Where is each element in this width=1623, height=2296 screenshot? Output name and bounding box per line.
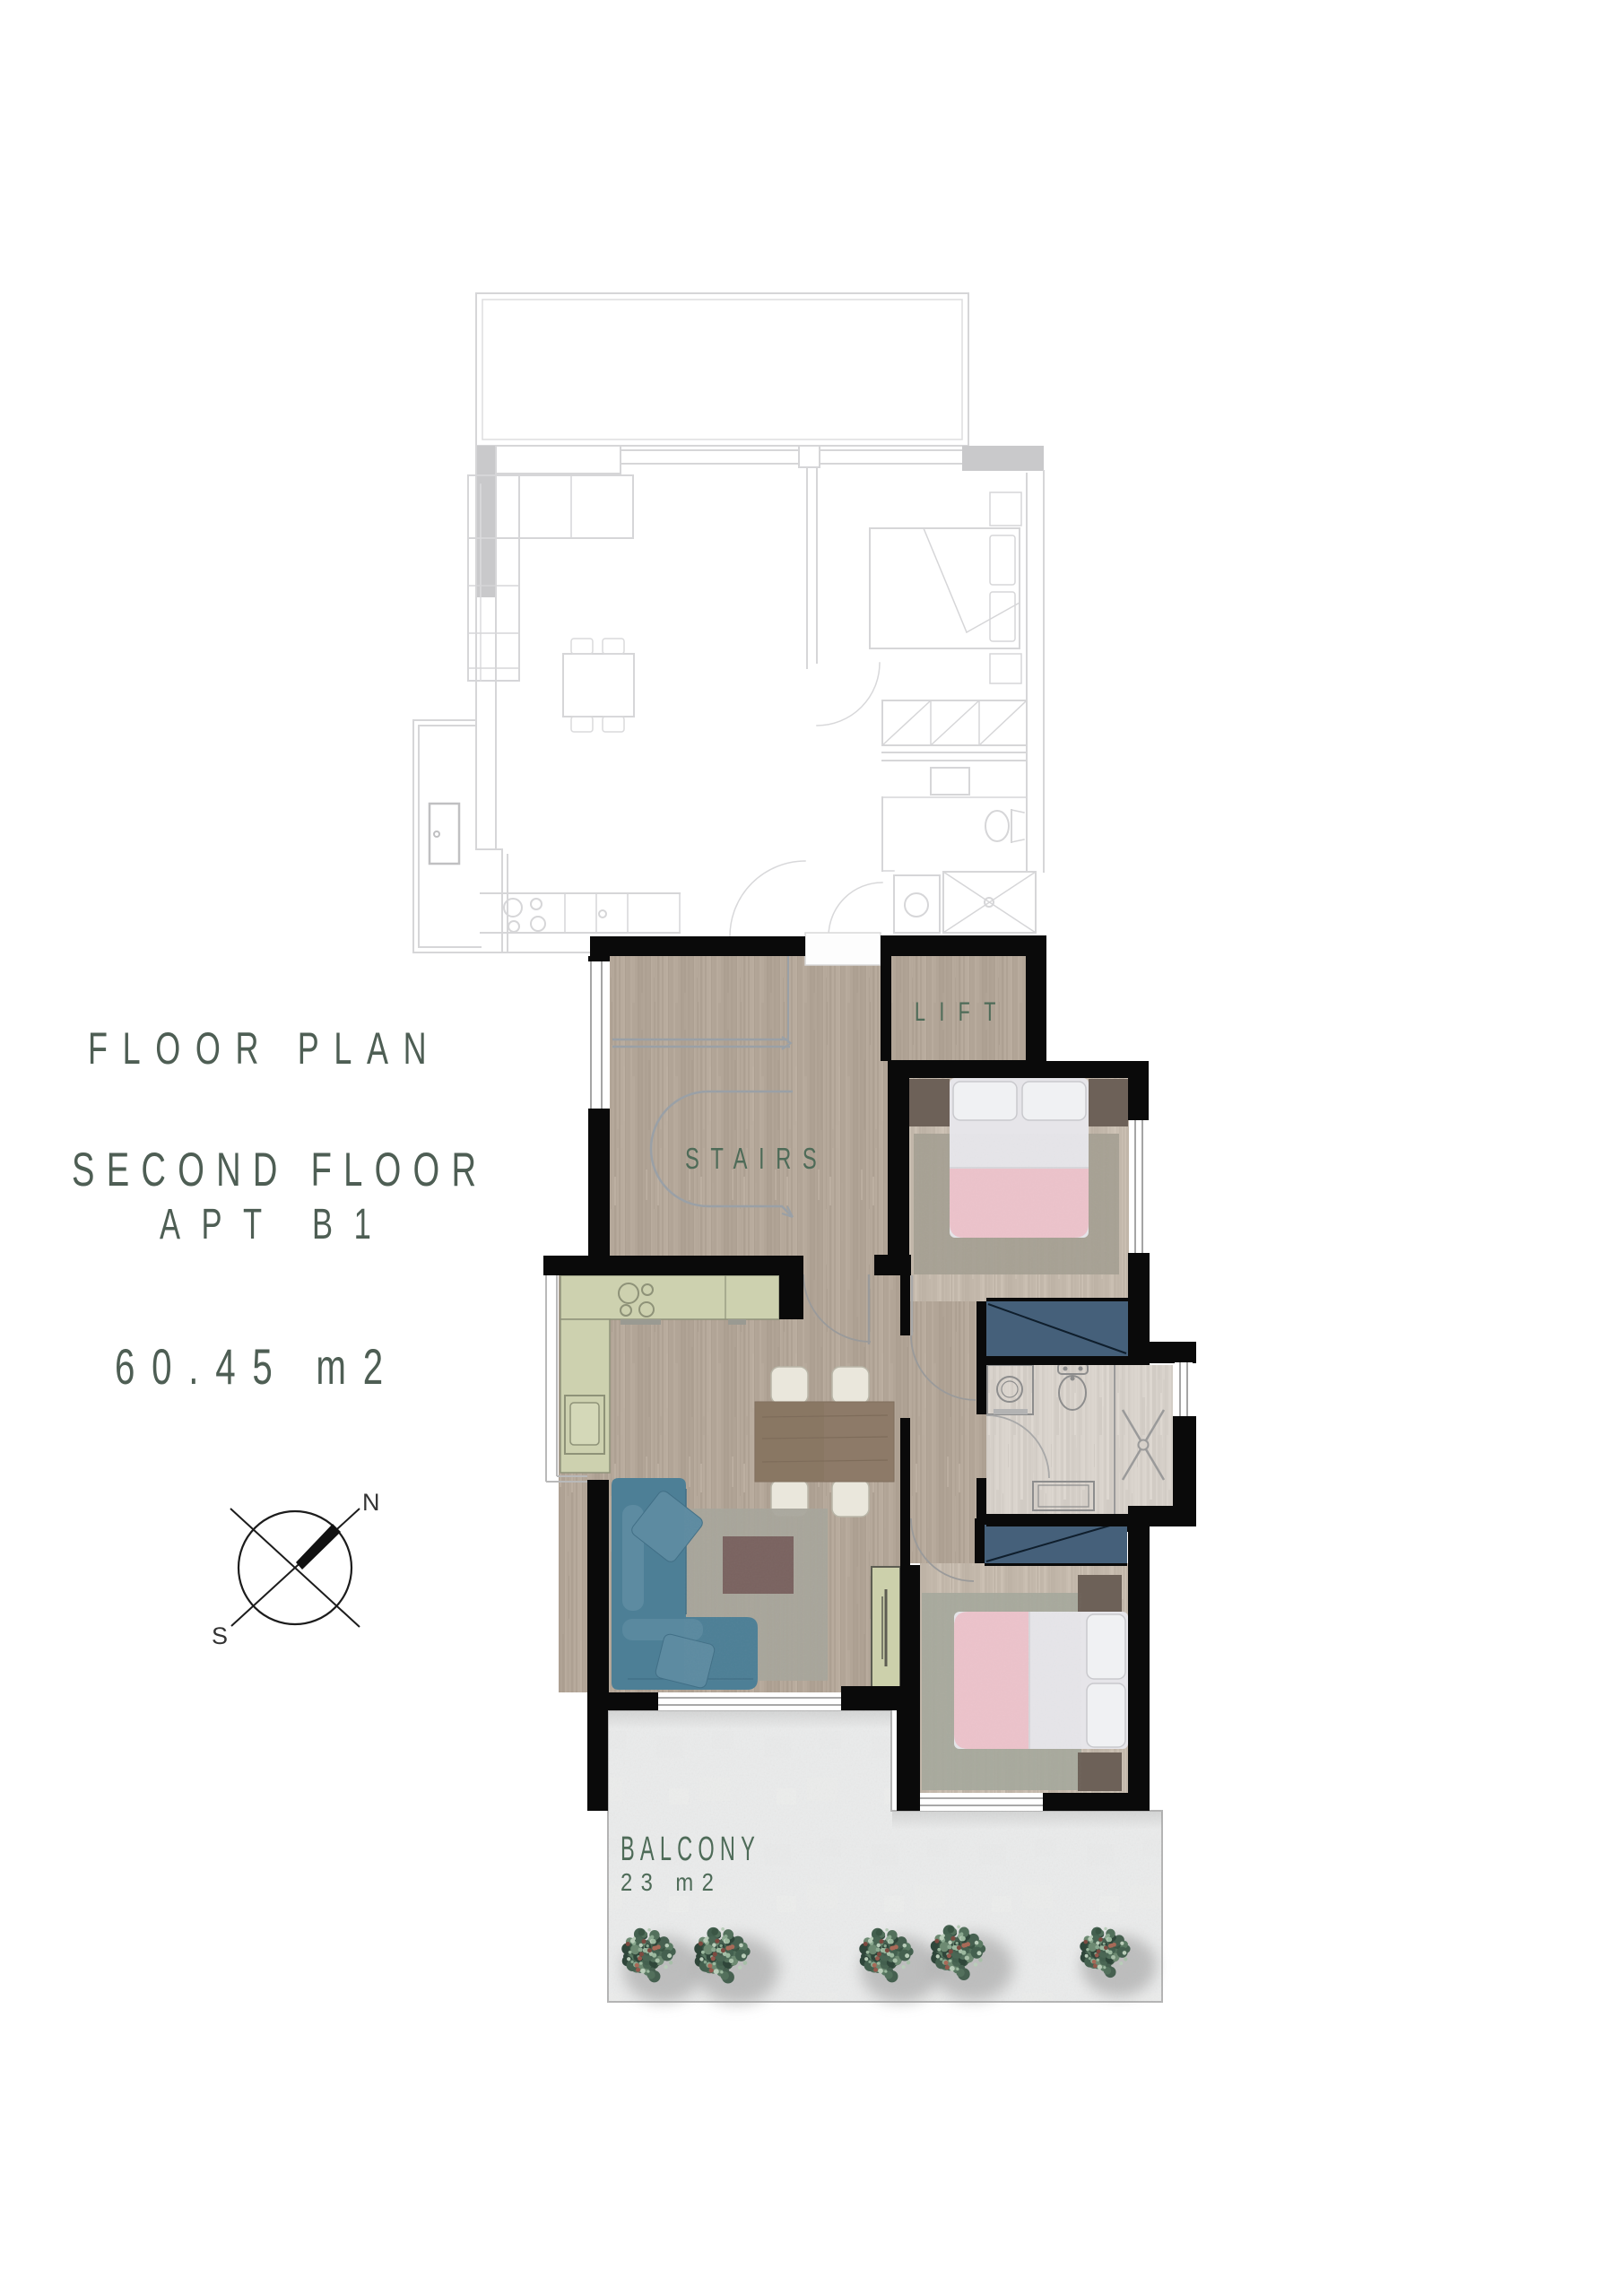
svg-text:SECOND FLOOR: SECOND FLOOR <box>72 1143 488 1196</box>
svg-text:APT B1: APT B1 <box>160 1199 392 1248</box>
svg-text:FLOOR PLAN: FLOOR PLAN <box>88 1024 441 1074</box>
svg-text:STAIRS: STAIRS <box>685 1143 828 1176</box>
svg-text:S: S <box>212 1622 228 1649</box>
svg-text:LIFT: LIFT <box>915 996 1010 1026</box>
svg-text:BALCONY: BALCONY <box>621 1829 760 1867</box>
svg-text:60.45 m2: 60.45 m2 <box>115 1340 400 1396</box>
svg-text:23 m2: 23 m2 <box>621 1867 722 1896</box>
svg-text:N: N <box>362 1489 380 1516</box>
